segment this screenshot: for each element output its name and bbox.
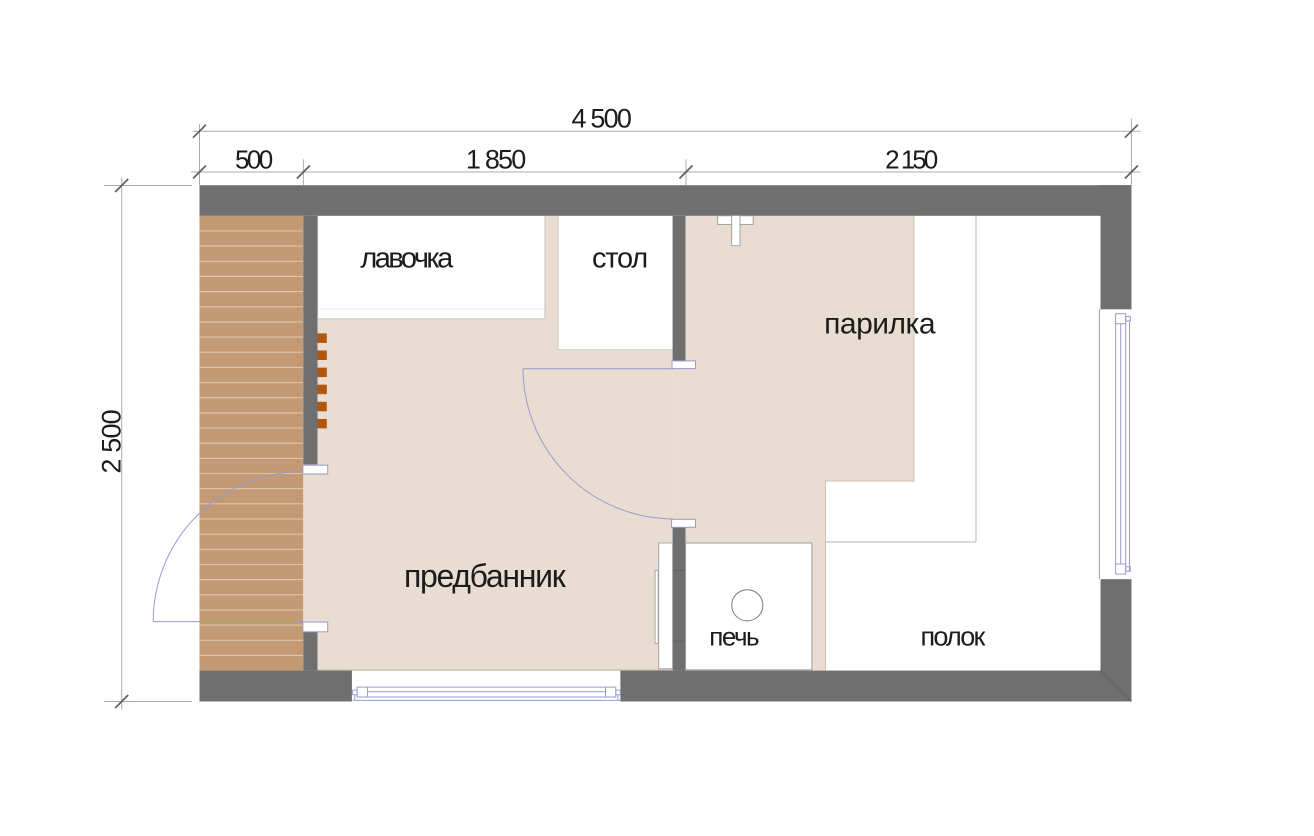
svg-text:стол: стол: [592, 243, 647, 275]
svg-text:2 500: 2 500: [96, 410, 126, 474]
svg-text:2 150: 2 150: [885, 145, 938, 175]
svg-text:4 500: 4 500: [572, 104, 631, 134]
svg-text:лавочка: лавочка: [360, 243, 454, 275]
svg-text:парилка: парилка: [824, 307, 936, 340]
svg-text:полок: полок: [921, 622, 986, 652]
svg-text:предбанник: предбанник: [404, 558, 567, 594]
svg-text:500: 500: [235, 145, 273, 175]
svg-text:1 850: 1 850: [466, 145, 525, 175]
svg-text:печь: печь: [709, 622, 759, 652]
